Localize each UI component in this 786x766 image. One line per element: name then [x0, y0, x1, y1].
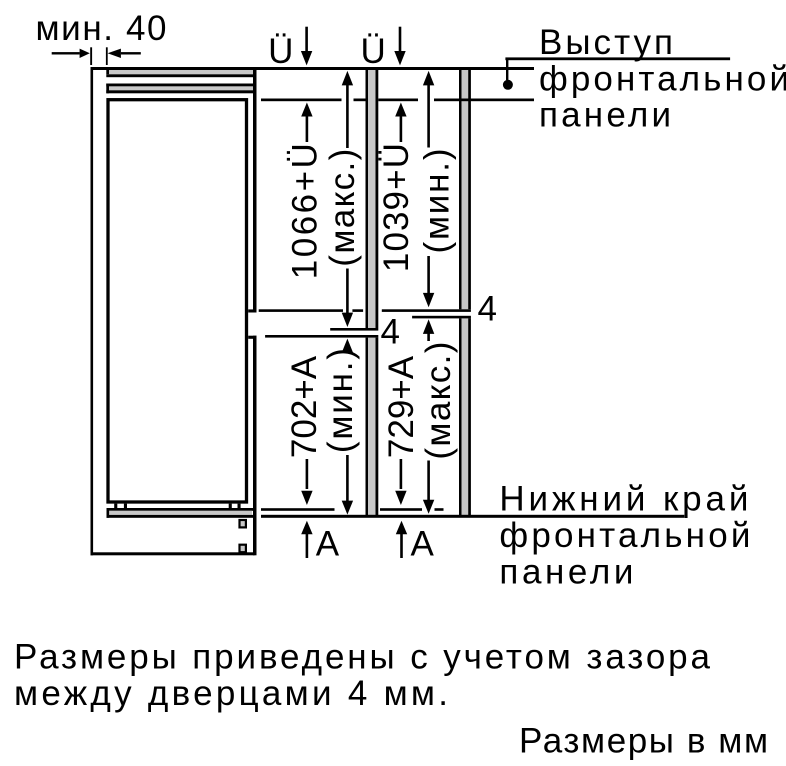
svg-text:Размеры приведены с учетом заз: Размеры приведены с учетом зазора: [14, 637, 711, 676]
svg-text:фронтальной: фронтальной: [539, 59, 786, 98]
svg-text:(макс.): (макс.): [323, 149, 362, 267]
svg-text:между дверцами 4 мм.: между дверцами 4 мм.: [14, 674, 448, 713]
svg-text:702+A: 702+A: [285, 355, 324, 458]
svg-text:4: 4: [478, 290, 497, 329]
svg-text:(мин.): (мин.): [418, 149, 457, 254]
svg-text:(макс.): (макс.): [419, 342, 458, 460]
svg-text:фронтальной: фронтальной: [499, 516, 750, 555]
svg-text:A: A: [411, 525, 435, 564]
svg-text:мин. 40: мин. 40: [36, 9, 167, 48]
svg-text:Ü: Ü: [361, 32, 386, 71]
svg-text:4: 4: [381, 313, 400, 352]
svg-text:Ü: Ü: [268, 32, 293, 71]
svg-text:(мин.): (мин.): [321, 348, 360, 453]
svg-text:729+A: 729+A: [382, 355, 421, 458]
svg-text:A: A: [316, 525, 340, 564]
svg-text:Размеры в мм: Размеры в мм: [519, 722, 768, 761]
svg-text:1039+Ü: 1039+Ü: [377, 143, 416, 272]
